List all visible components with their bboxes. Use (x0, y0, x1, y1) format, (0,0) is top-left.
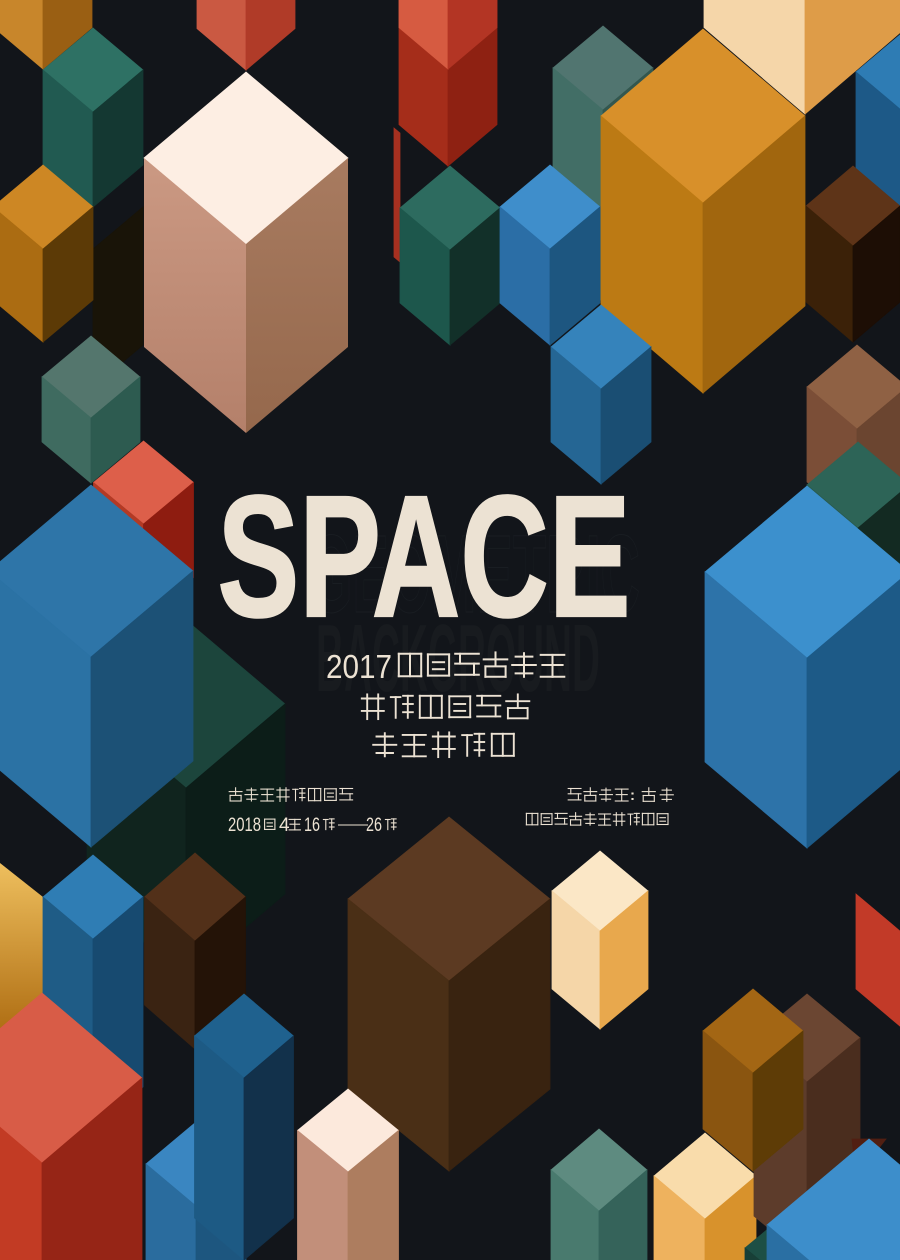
svg-text:——: —— (338, 816, 368, 833)
svg-text:26: 26 (366, 815, 382, 836)
svg-text:16: 16 (304, 815, 320, 836)
svg-text:2018: 2018 (228, 815, 261, 836)
svg-text::: : (630, 787, 635, 804)
svg-text:4: 4 (279, 815, 290, 836)
svg-text:2017: 2017 (326, 648, 392, 685)
svg-text:SPACE: SPACE (218, 459, 631, 653)
